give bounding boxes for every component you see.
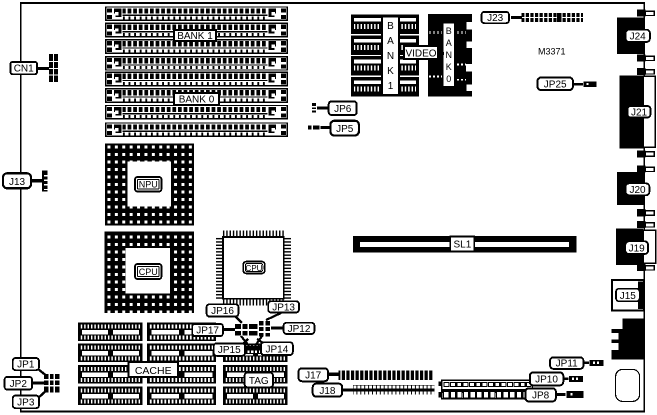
svg-text:N: N <box>445 50 452 60</box>
svg-text:JP13: JP13 <box>272 302 295 313</box>
svg-text:J20: J20 <box>629 185 646 196</box>
svg-text:NPU: NPU <box>139 180 158 190</box>
svg-text:A: A <box>387 36 394 47</box>
svg-text:M3371: M3371 <box>538 47 566 57</box>
svg-text:J19: J19 <box>629 243 646 254</box>
svg-text:N: N <box>387 51 394 62</box>
svg-text:CPU: CPU <box>139 267 158 277</box>
svg-text:JP5: JP5 <box>336 124 354 135</box>
svg-text:J13: J13 <box>9 177 26 188</box>
svg-text:JP3: JP3 <box>17 398 35 409</box>
svg-text:B: B <box>446 26 452 36</box>
svg-text:JP10: JP10 <box>535 375 558 386</box>
svg-text:J17: J17 <box>305 371 322 382</box>
svg-text:VIDEO: VIDEO <box>405 48 436 59</box>
svg-text:CACHE: CACHE <box>135 365 172 377</box>
svg-text:J23: J23 <box>487 13 504 24</box>
svg-text:J15: J15 <box>620 291 637 302</box>
svg-text:JP15: JP15 <box>218 345 241 356</box>
svg-text:JP17: JP17 <box>196 326 219 337</box>
svg-text:JP8: JP8 <box>532 391 550 402</box>
svg-text:JP25: JP25 <box>544 80 567 91</box>
svg-text:J18: J18 <box>319 386 336 397</box>
svg-text:JP1: JP1 <box>17 360 35 371</box>
svg-text:BANK 0: BANK 0 <box>179 95 215 106</box>
svg-text:TAG: TAG <box>249 376 269 387</box>
svg-text:SL1: SL1 <box>454 240 472 251</box>
svg-text:1: 1 <box>388 81 394 92</box>
svg-text:JP12: JP12 <box>288 324 311 335</box>
svg-text:A: A <box>446 38 452 48</box>
svg-text:BANK 1: BANK 1 <box>177 31 213 42</box>
svg-text:J24: J24 <box>630 32 647 43</box>
svg-text:JP16: JP16 <box>211 306 234 317</box>
svg-text:B: B <box>387 21 394 32</box>
svg-text:CPU: CPU <box>246 264 263 273</box>
svg-text:JP14: JP14 <box>266 344 289 355</box>
svg-text:JP11: JP11 <box>556 359 578 370</box>
svg-text:CN1: CN1 <box>14 64 34 75</box>
svg-text:0: 0 <box>446 74 451 84</box>
svg-text:JP6: JP6 <box>334 104 352 115</box>
svg-text:K: K <box>446 62 452 72</box>
svg-text:JP2: JP2 <box>10 379 28 390</box>
svg-text:J21: J21 <box>631 107 648 118</box>
svg-text:K: K <box>387 66 394 77</box>
